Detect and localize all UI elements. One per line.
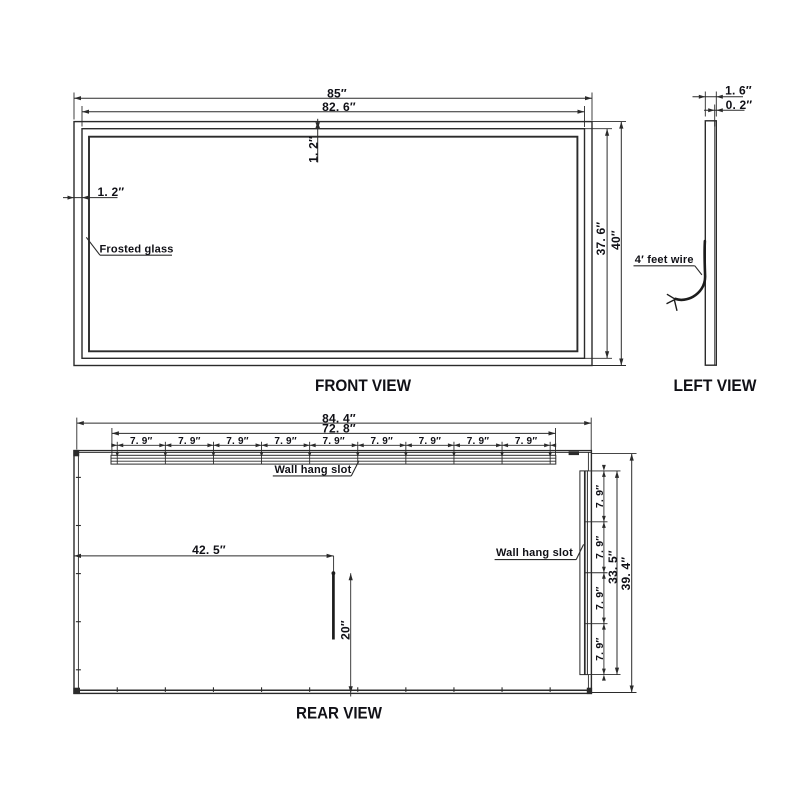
svg-text:42. 5″: 42. 5″ (192, 543, 226, 557)
svg-text:1. 2″: 1. 2″ (307, 136, 321, 163)
svg-text:7. 9″: 7. 9″ (371, 436, 393, 447)
svg-text:7. 9″: 7. 9″ (226, 436, 248, 447)
svg-text:85″: 85″ (327, 86, 347, 100)
svg-text:7. 9″: 7. 9″ (594, 586, 606, 610)
svg-text:40″: 40″ (609, 230, 623, 250)
svg-text:Wall hang slot: Wall hang slot (496, 547, 573, 559)
svg-text:4′ feet wire: 4′ feet wire (635, 254, 694, 266)
svg-text:Frosted glass: Frosted glass (100, 243, 174, 255)
svg-text:33. 5″: 33. 5″ (606, 550, 620, 584)
svg-text:39. 4″: 39. 4″ (619, 557, 633, 591)
svg-text:7. 9″: 7. 9″ (178, 436, 200, 447)
svg-text:7. 9″: 7. 9″ (594, 637, 606, 661)
svg-text:1. 2″: 1. 2″ (98, 185, 125, 199)
svg-text:7. 9″: 7. 9″ (322, 436, 344, 447)
svg-text:7. 9″: 7. 9″ (515, 436, 537, 447)
svg-text:7. 9″: 7. 9″ (594, 536, 606, 560)
svg-text:0. 2″: 0. 2″ (726, 98, 753, 112)
svg-text:REAR VIEW: REAR VIEW (296, 704, 383, 723)
svg-text:Wall hang slot: Wall hang slot (275, 464, 352, 476)
svg-text:20″: 20″ (338, 620, 352, 640)
svg-text:7. 9″: 7. 9″ (419, 436, 441, 447)
svg-text:7. 9″: 7. 9″ (274, 436, 296, 447)
svg-text:LEFT VIEW: LEFT VIEW (674, 376, 758, 395)
svg-text:7. 9″: 7. 9″ (467, 436, 489, 447)
svg-text:1. 6″: 1. 6″ (725, 84, 752, 98)
svg-text:7. 9″: 7. 9″ (130, 436, 152, 447)
svg-text:72. 8″: 72. 8″ (322, 421, 356, 435)
svg-text:37. 6″: 37. 6″ (594, 222, 608, 256)
svg-text:7. 9″: 7. 9″ (594, 485, 606, 509)
svg-text:FRONT VIEW: FRONT VIEW (315, 376, 412, 395)
svg-text:82. 6″: 82. 6″ (322, 100, 356, 114)
